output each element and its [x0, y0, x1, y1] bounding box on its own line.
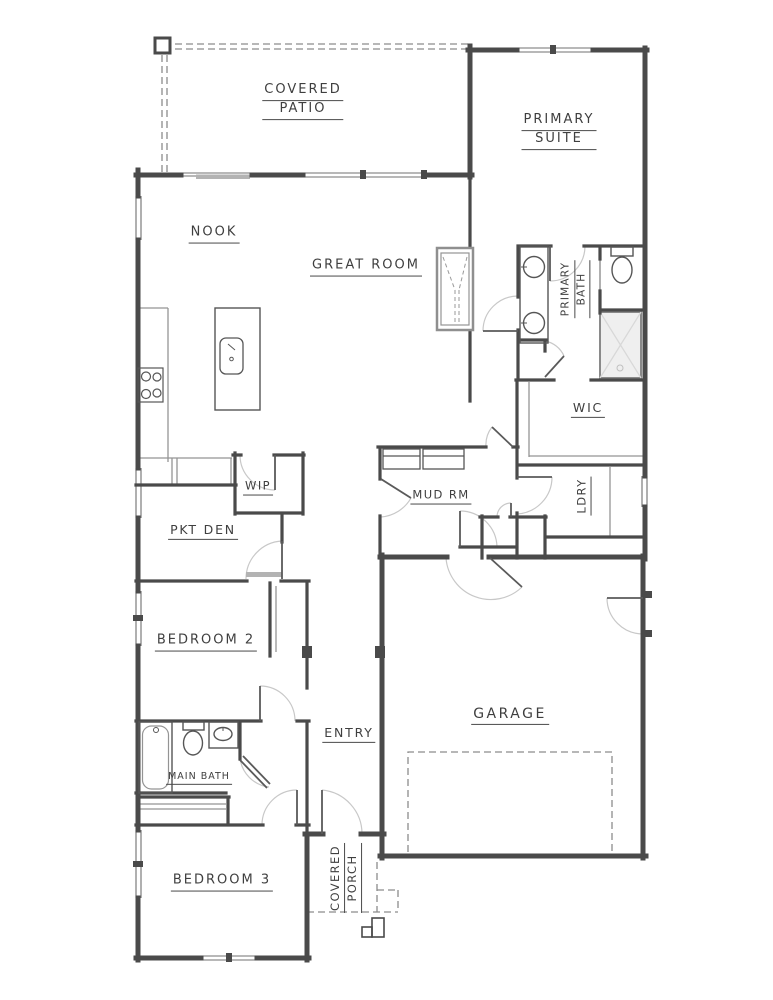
den-door-panel [246, 572, 282, 577]
island-faucet-icon [228, 344, 235, 350]
room-label-mud-rm: MUD RM [410, 488, 471, 505]
main-vanity [209, 722, 238, 748]
room-label-garage: GARAGE [471, 705, 549, 725]
tub-faucet-icon [154, 728, 159, 733]
door-jambs [302, 591, 652, 658]
door-leaves [240, 246, 643, 834]
exterior-walls [136, 46, 647, 960]
room-label-bedroom-3: BEDROOM 3 [171, 873, 273, 892]
primary-toilet [611, 247, 633, 283]
patio-slider-panel [196, 175, 250, 180]
patio-post [155, 38, 170, 53]
door-arcs [240, 246, 643, 834]
room-label-covered-porch: COVERED PORCH [328, 843, 362, 913]
garage-door-dashed [408, 752, 612, 852]
room-label-wic: WIC [571, 400, 605, 418]
porch-steps [372, 918, 384, 937]
room-label-bedroom-2: BEDROOM 2 [155, 633, 257, 652]
room-label-great-room: GREAT ROOM [310, 258, 422, 277]
room-label-nook: NOOK [189, 225, 240, 244]
room-label-covered-patio: COVERED PATIO [262, 82, 343, 120]
room-label-pkt-den: PKT DEN [168, 522, 238, 540]
floor-plan-drawing [0, 0, 773, 1000]
room-label-primary-suite: PRIMARY SUITE [522, 112, 597, 150]
room-label-main-bath: MAIN BATH [166, 771, 232, 785]
kitchen-island [215, 308, 260, 410]
room-label-ldry: LDRY [575, 476, 592, 515]
mud-room-lockers [383, 449, 464, 469]
cooktop [138, 368, 163, 402]
porch-step-lower [362, 927, 372, 937]
room-label-wip: WIP [243, 479, 273, 496]
fireplace [437, 248, 473, 330]
primary-vanity [520, 246, 548, 343]
shower [600, 312, 641, 378]
room-label-primary-bath: PRIMARY BATH [559, 260, 590, 318]
island-sink [220, 338, 243, 374]
room-label-entry: ENTRY [322, 725, 375, 743]
floor-plan: COVERED PATIO PRIMARY SUITE NOOK GREAT R… [0, 0, 773, 1000]
main-toilet [183, 722, 204, 755]
